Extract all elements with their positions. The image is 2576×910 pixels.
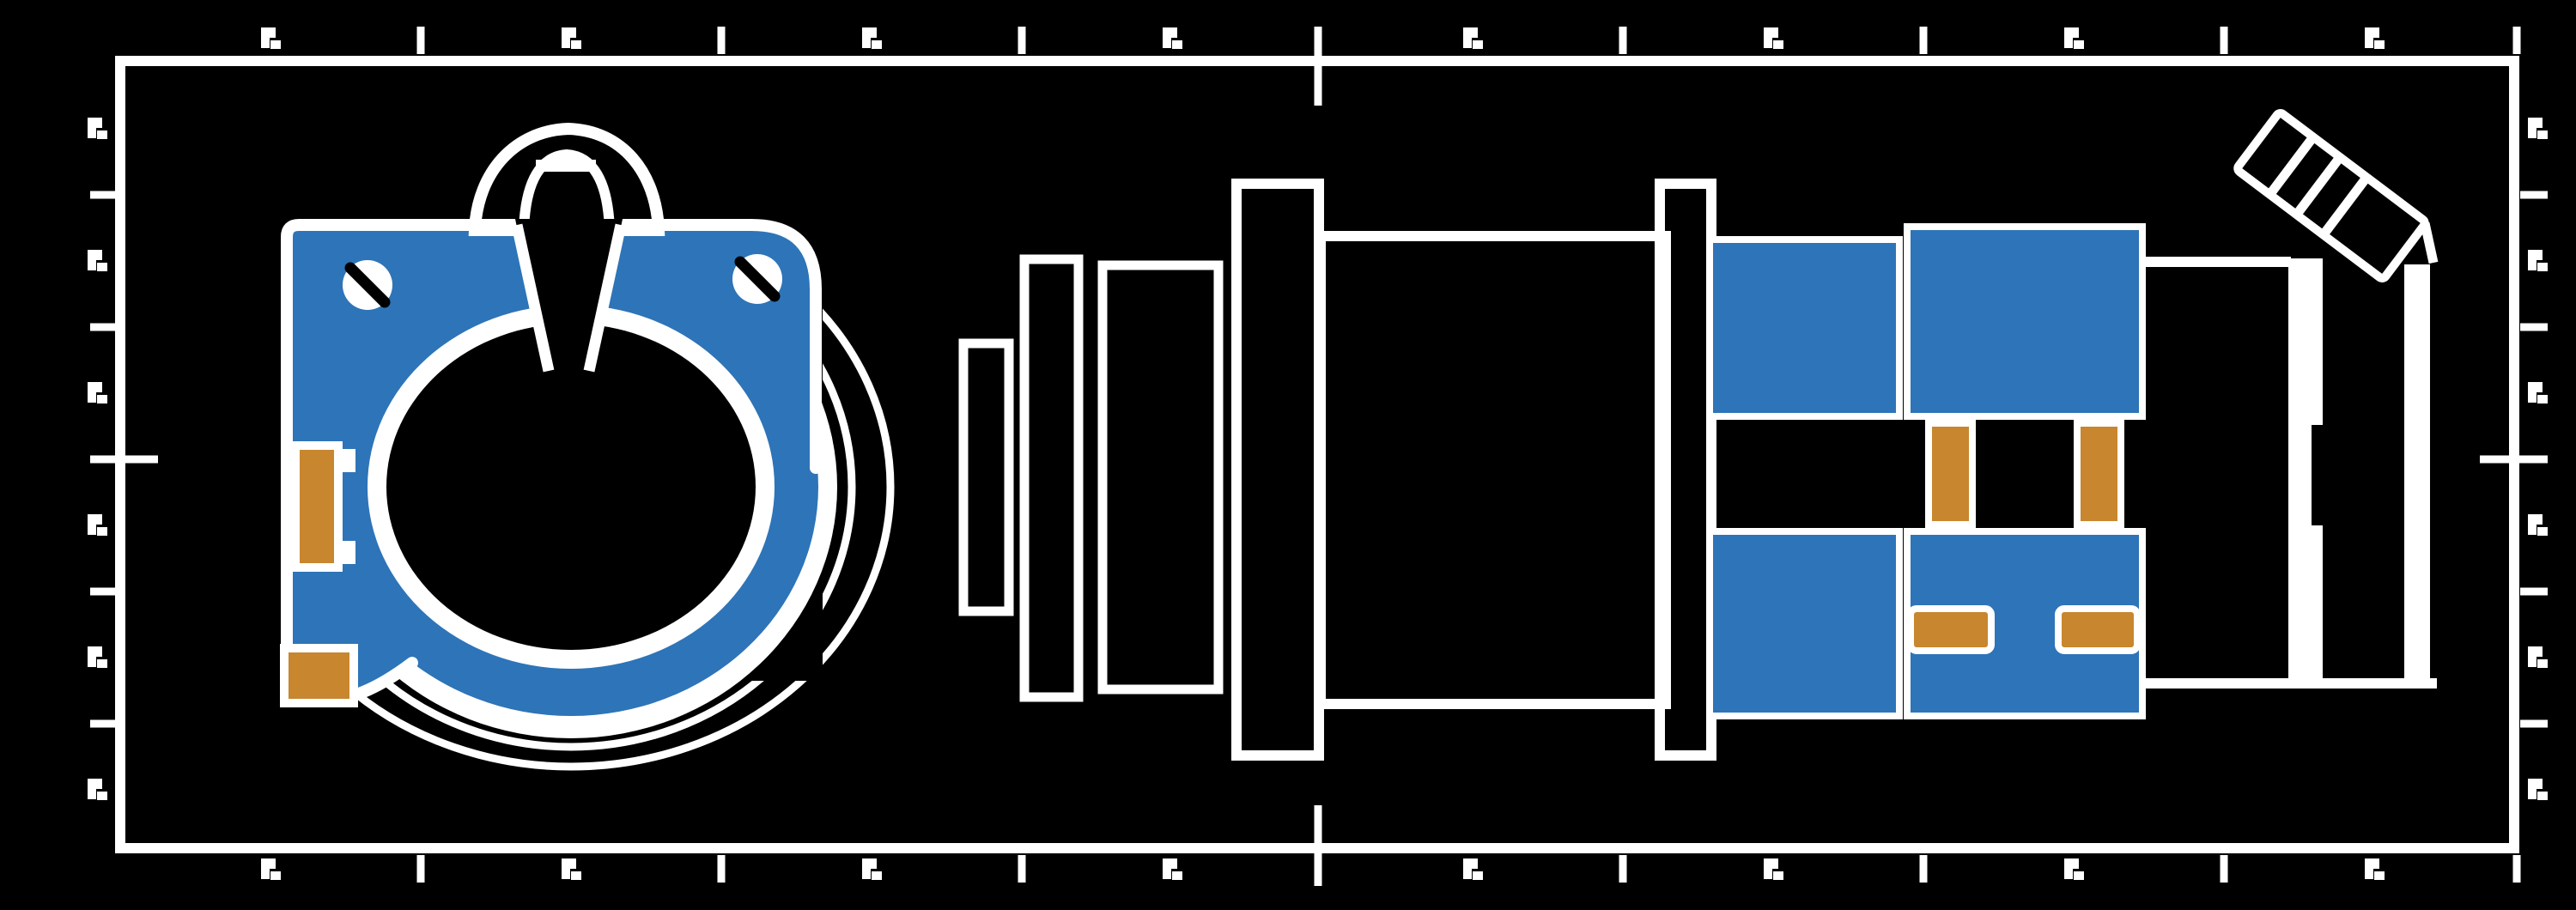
backshell-upper-left (1710, 240, 1899, 416)
contact-block-lower (284, 648, 354, 703)
contact-pad-right (2058, 609, 2137, 651)
insulator-bar-right (2077, 423, 2121, 525)
cad-canvas (0, 0, 2576, 910)
screw-hole-left (343, 260, 392, 310)
contact-pad-left (1911, 609, 1991, 651)
cad-drawing-svg (0, 0, 2576, 910)
screw-hole-right (732, 254, 782, 304)
cylinder-step-slot (2312, 425, 2324, 525)
keyway-tab (536, 160, 596, 172)
backshell-lower-left (1710, 531, 1899, 716)
contact-tab-top (340, 449, 355, 472)
contact-tab-bottom (340, 541, 355, 564)
contact-block-upper-rect (295, 446, 338, 567)
cylinder-end-face (2404, 264, 2430, 687)
backshell-upper-right (1907, 227, 2142, 416)
insulator-bar-left (1929, 423, 1972, 525)
